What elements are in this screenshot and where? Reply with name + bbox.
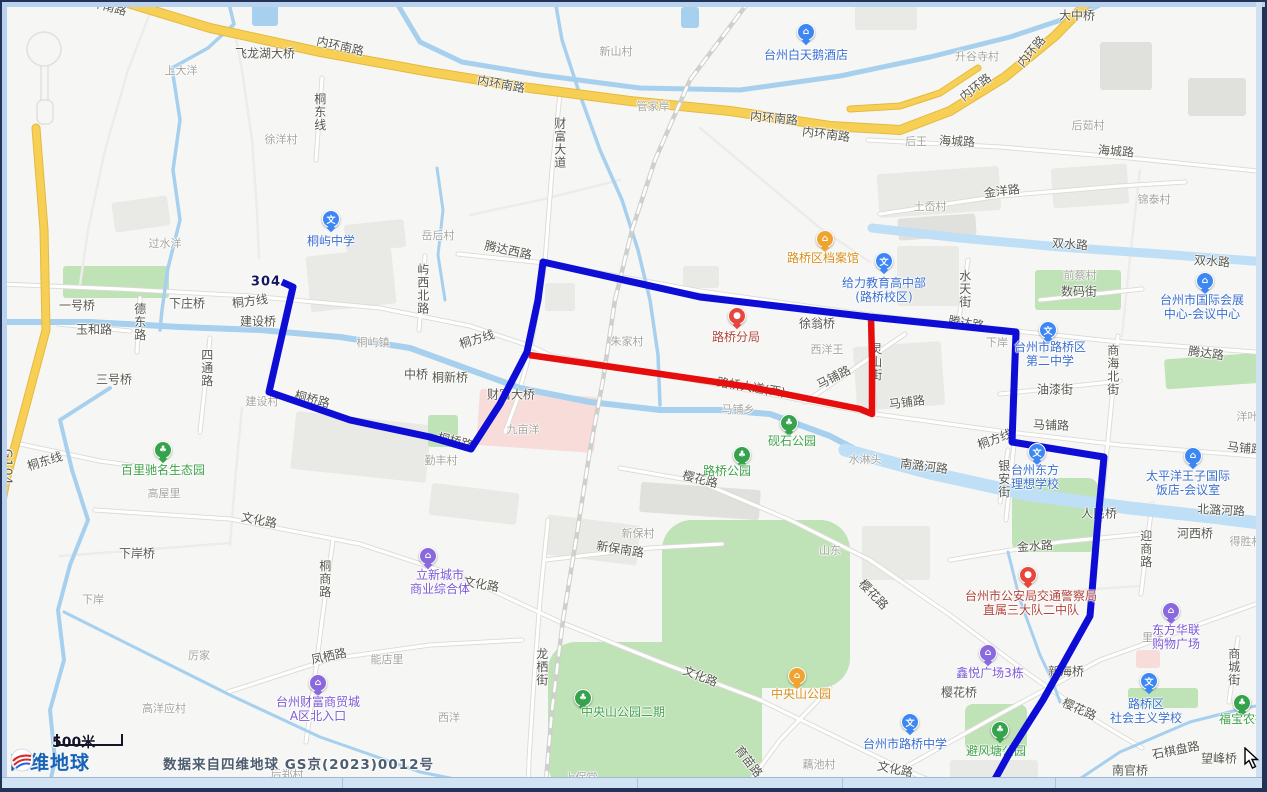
poi-label[interactable]: 台州财富商贸城 A区北入口 [276, 695, 360, 723]
poi-label[interactable]: 台州市路桥区 第二中学 [1014, 340, 1086, 368]
poi-pin-purple[interactable]: ⌂ [419, 547, 437, 565]
right-scrollbar[interactable] [1256, 2, 1262, 787]
poi-glyph-icon: ⌂ [794, 671, 800, 681]
poi-pin-green[interactable]: ♣ [1233, 694, 1251, 712]
poi-glyph-icon: 文 [1032, 446, 1041, 459]
poi-label[interactable]: 台州东方 理想学校 [1011, 463, 1059, 491]
poi-glyph-icon: ♣ [738, 450, 746, 460]
poi-pin-blue[interactable]: 文 [1028, 443, 1046, 461]
poi-pin-orange[interactable]: ⌂ [788, 667, 806, 685]
poi-label[interactable]: 桐屿中学 [307, 234, 355, 248]
poi-glyph-icon: ⌂ [315, 678, 321, 688]
scrollbar-tick [1055, 778, 1056, 788]
poi-label[interactable]: 福宝农批 [1219, 712, 1256, 726]
poi-pin-tail [1024, 580, 1032, 588]
poi-label[interactable]: 路桥区档案馆 [787, 251, 859, 265]
poi-glyph-icon: ⌂ [1202, 276, 1208, 286]
poi-glyph-icon: 文 [879, 255, 888, 268]
poi-glyph-icon: ⌂ [803, 27, 809, 37]
poi-layer: 文桐屿中学文给力教育高中部 (路桥校区)文台州市路桥区 第二中学文台州东方 理想… [7, 7, 1256, 778]
poi-pin-tail [327, 224, 335, 232]
poi-label[interactable]: 台州市路桥中学 [863, 737, 947, 751]
frame-strip-top [2, 2, 1265, 7]
poi-pin-blue[interactable]: 文 [1039, 321, 1057, 339]
poi-glyph-icon: ● [1024, 570, 1032, 580]
poi-label[interactable]: 鑫悦广场3栋 [956, 666, 1024, 680]
poi-pin-blue[interactable]: 文 [1140, 672, 1158, 690]
poi-pin-blue[interactable]: 文 [322, 210, 340, 228]
poi-glyph-icon: ● [733, 311, 741, 321]
map-attribution: 数据来自四维地球 GS京(2023)0012号 [163, 753, 434, 773]
poi-pin-purple[interactable]: ⌂ [979, 644, 997, 662]
poi-pin-blue[interactable]: ⌂ [1196, 272, 1214, 290]
poi-glyph-icon: ⌂ [425, 551, 431, 561]
poi-pin-tail [1145, 686, 1153, 694]
scrollbar-tick [342, 778, 343, 788]
poi-label[interactable]: 路桥公园 [703, 464, 751, 478]
poi-pin-tail [1189, 461, 1197, 469]
poi-pin-tail [984, 658, 992, 666]
siwei-logo-icon [10, 748, 34, 772]
poi-pin-purple[interactable]: ⌂ [309, 674, 327, 692]
scrollbar-tick [842, 778, 843, 788]
poi-pin-orange[interactable]: ⌂ [816, 230, 834, 248]
poi-glyph-icon: ♣ [1238, 698, 1246, 708]
poi-pin-red[interactable]: ● [1019, 566, 1037, 584]
poi-pin-tail [880, 266, 888, 274]
poi-pin-red[interactable]: ● [728, 307, 746, 325]
poi-pin-blue[interactable]: ⌂ [797, 23, 815, 41]
poi-label[interactable]: 砚石公园 [768, 434, 816, 448]
map-viewport[interactable]: 内环南路内环南路内环南路内环南路内环南路内环路内环路大中桥飞龙湖大桥海城路海城路… [7, 7, 1256, 778]
poi-label[interactable]: 给力教育高中部 (路桥校区) [842, 276, 926, 304]
frame-strip-left [2, 2, 7, 788]
poi-glyph-icon: 文 [1144, 675, 1153, 688]
poi-pin-tail [906, 727, 914, 735]
poi-pin-green[interactable]: ♣ [780, 414, 798, 432]
poi-label[interactable]: 中央山公园二期 [581, 705, 665, 719]
poi-label[interactable]: 中央山公园 [771, 687, 831, 701]
poi-glyph-icon: ⌂ [1168, 606, 1174, 616]
scrollbar-tick [637, 778, 638, 788]
poi-label[interactable]: 百里驰名生态园 [121, 463, 205, 477]
poi-pin-purple[interactable]: ⌂ [1162, 602, 1180, 620]
map-window: 内环南路内环南路内环南路内环南路内环南路内环路内环路大中桥飞龙湖大桥海城路海城路… [0, 0, 1267, 792]
provider-logo[interactable]: 四维地球 [10, 748, 90, 775]
poi-label[interactable]: 太平洋王子国际 饭店-会议室 [1146, 469, 1230, 497]
poi-glyph-icon: 文 [905, 716, 914, 729]
mouse-cursor-icon [1243, 747, 1263, 771]
poi-label[interactable]: 东方华联 购物广场 [1152, 623, 1200, 651]
poi-label[interactable]: 台州白天鹅酒店 [764, 48, 848, 62]
route-number-badge[interactable]: 304 [251, 275, 281, 290]
poi-label[interactable]: 路桥分局 [712, 330, 760, 344]
horizontal-scrollbar[interactable] [2, 777, 1262, 788]
poi-pin-green[interactable]: ♣ [154, 441, 172, 459]
scale-bracket [52, 732, 132, 748]
poi-glyph-icon: ♣ [579, 693, 587, 703]
poi-pin-blue[interactable]: 文 [875, 252, 893, 270]
poi-glyph-icon: 文 [1043, 324, 1052, 337]
poi-pin-blue[interactable]: 文 [901, 713, 919, 731]
poi-glyph-icon: ♣ [785, 418, 793, 428]
poi-label[interactable]: 立新城市 商业综合体 [410, 568, 470, 596]
poi-glyph-icon: ⌂ [985, 648, 991, 658]
poi-label[interactable]: 路桥区 社会主义学校 [1110, 697, 1182, 725]
poi-glyph-icon: ⌂ [1190, 451, 1196, 461]
poi-glyph-icon: ♣ [159, 445, 167, 455]
poi-glyph-icon: ⌂ [822, 234, 828, 244]
map-canvas[interactable]: 内环南路内环南路内环南路内环南路内环南路内环路内环路大中桥飞龙湖大桥海城路海城路… [7, 7, 1256, 778]
poi-pin-tail [159, 455, 167, 463]
poi-pin-blue[interactable]: ⌂ [1184, 447, 1202, 465]
poi-label[interactable]: 台州市公安局交通警察局 直属三大队二中队 [965, 589, 1097, 617]
poi-label[interactable]: 台州市国际会展 中心-会议中心 [1160, 293, 1244, 321]
poi-pin-tail [733, 321, 741, 329]
poi-glyph-icon: 文 [326, 213, 335, 226]
poi-pin-tail [802, 37, 810, 45]
poi-pin-green[interactable]: ♣ [733, 446, 751, 464]
